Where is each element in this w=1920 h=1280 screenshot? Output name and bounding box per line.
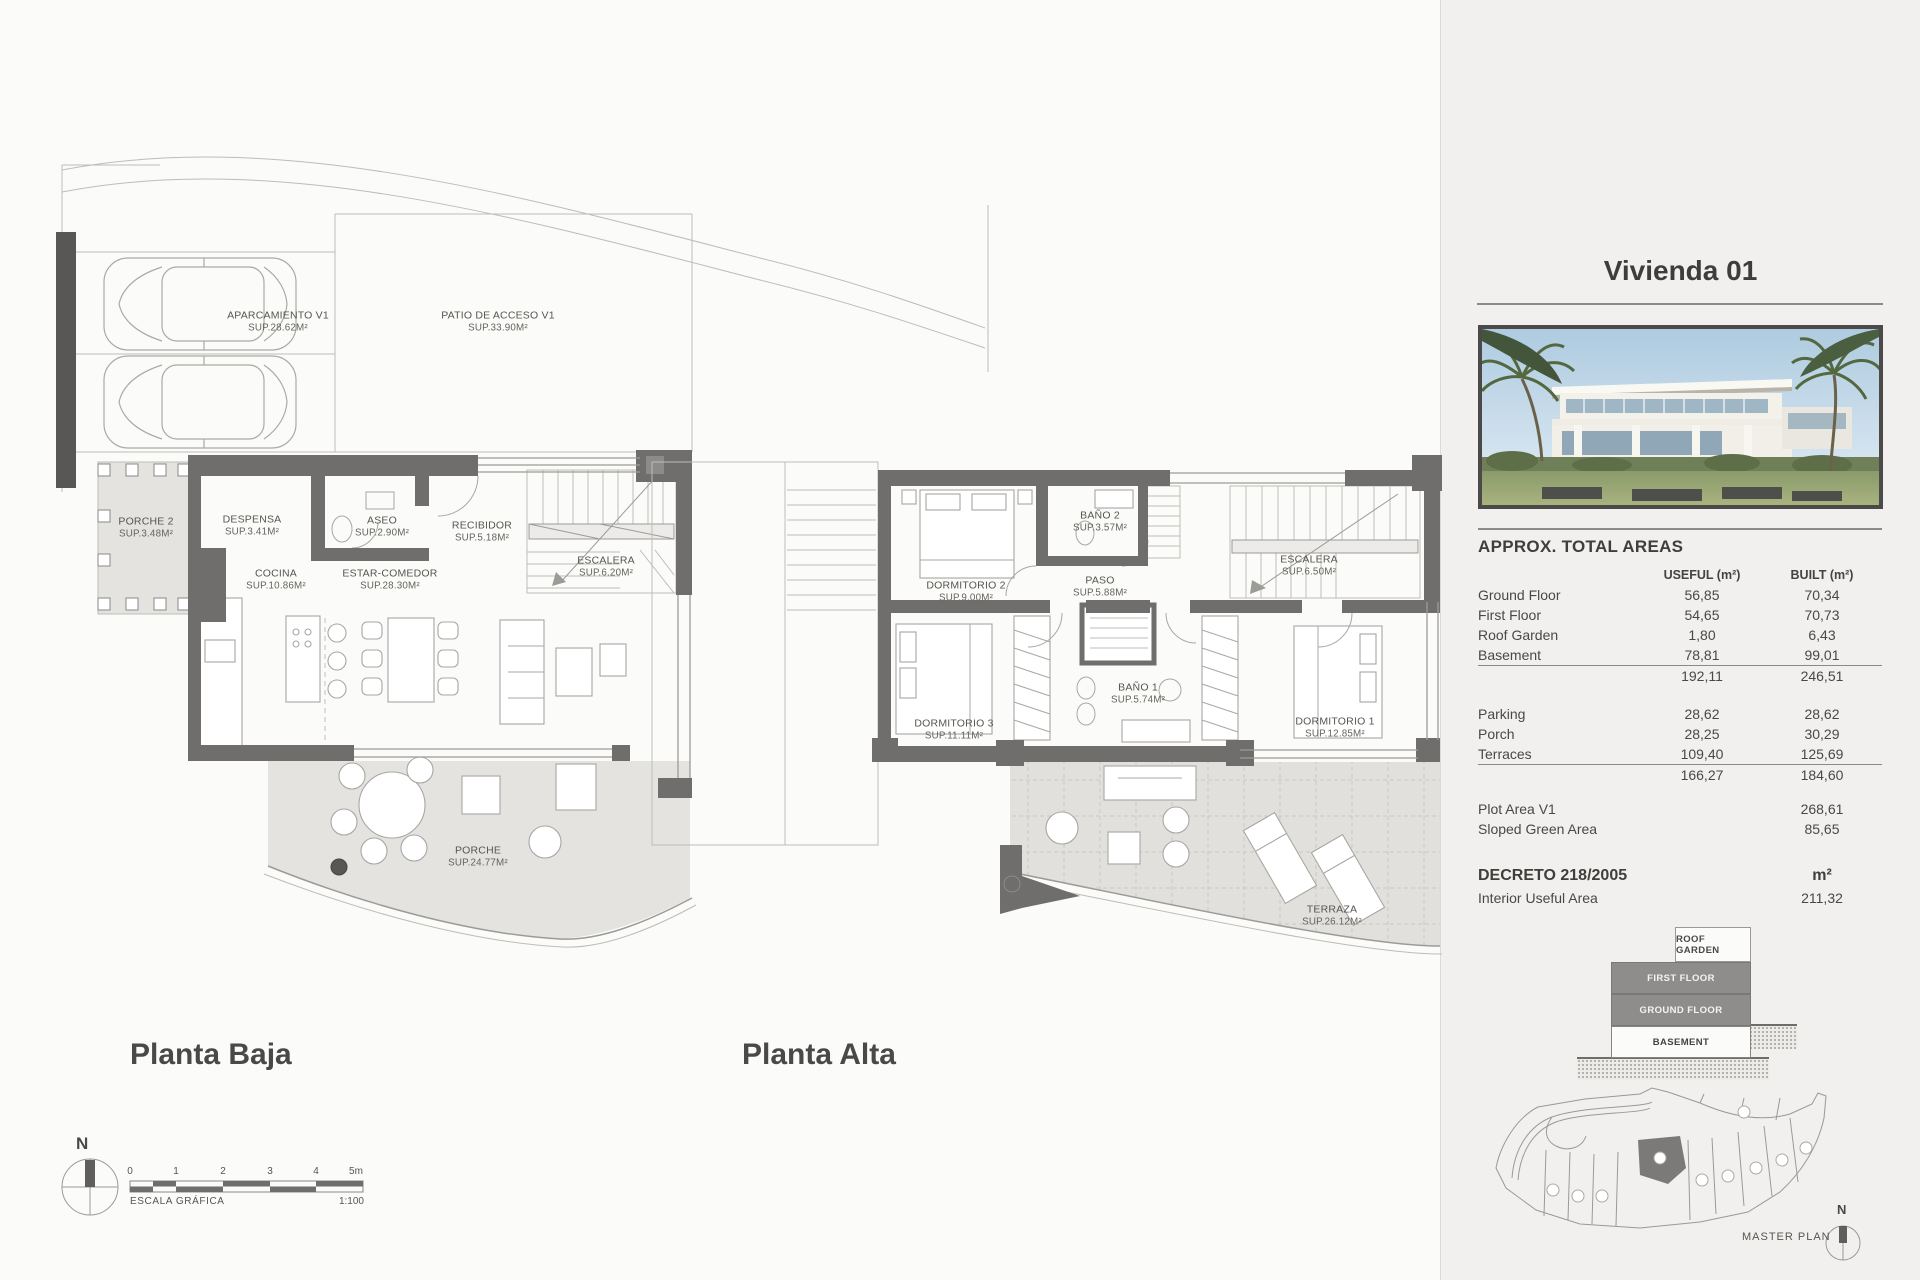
room-label-dormitorio-2: DORMITORIO 2 SUP.9.00M² [926, 580, 1005, 605]
subtotal-row: 166,27 184,60 [1478, 764, 1882, 785]
stack-first-floor: FIRST FLOOR [1611, 962, 1751, 994]
table-row: Roof Garden 1,80 6,43 [1478, 625, 1882, 645]
scale-tick-2: 2 [220, 1166, 226, 1177]
room-label-bano-1: BAÑO 1 SUP.5.74M² [1111, 682, 1165, 707]
floorplan-sheet: APARCAMIENTO V1 SUP.28.62M² PATIO DE ACC… [0, 0, 1920, 1280]
title-rule [1477, 303, 1883, 305]
stack-basement: BASEMENT [1611, 1026, 1751, 1058]
scale-tick-4: 4 [313, 1166, 319, 1177]
room-label-cocina: COCINA SUP.10.86M² [246, 568, 306, 593]
scale-tick-1: 1 [173, 1166, 179, 1177]
ground-hatch-right [1749, 1024, 1797, 1049]
table-row: Basement 78,81 99,01 [1478, 645, 1882, 665]
scale-tick-3: 3 [267, 1166, 273, 1177]
subtotal-row: 192,11 246,51 [1478, 665, 1882, 686]
room-label-recibidor: RECIBIDOR SUP.5.18M² [452, 520, 512, 545]
villa-render [1482, 329, 1879, 505]
room-label-despensa: DESPENSA SUP.3.41M² [223, 514, 282, 539]
areas-header-row: USEFUL (m²) BUILT (m²) [1478, 565, 1882, 585]
plan-title-alta: Planta Alta [742, 1038, 896, 1072]
label-aparcamiento: APARCAMIENTO V1 SUP.28.62M² [227, 310, 329, 335]
table-row: First Floor 54,65 70,73 [1478, 605, 1882, 625]
room-label-dormitorio-3: DORMITORIO 3 SUP.11.11M² [914, 718, 993, 743]
unit-title: Vivienda 01 [1478, 255, 1883, 287]
room-label-escalera-baja: ESCALERA SUP.6.20M² [577, 555, 635, 580]
site-wall-bar [56, 232, 76, 488]
scale-caption: ESCALA GRÁFICA [130, 1196, 225, 1207]
plan-title-baja: Planta Baja [130, 1038, 292, 1072]
villa-photo [1478, 325, 1883, 509]
table-row: Parking 28,62 28,62 [1478, 704, 1882, 724]
scale-tick-5: 5m [349, 1166, 363, 1177]
col-useful: USEFUL (m²) [1642, 568, 1762, 582]
stack-ground-floor: GROUND FLOOR [1611, 994, 1751, 1026]
room-label-paso: PASO SUP.5.88M² [1073, 575, 1127, 600]
scale-tick-0: 0 [127, 1166, 133, 1177]
decreto-row: DECRETO 218/2005 m² [1478, 865, 1882, 887]
room-label-estar-comedor: ESTAR-COMEDOR SUP.28.30M² [342, 568, 437, 593]
room-label-porche-2: PORCHE 2 SUP.3.48M² [118, 516, 173, 541]
scale-ratio: 1:100 [330, 1196, 364, 1207]
areas-table: USEFUL (m²) BUILT (m²) Ground Floor 56,8… [1478, 565, 1882, 909]
ground-hatch-bottom [1577, 1057, 1769, 1080]
masterplan-caption: MASTER PLAN [1742, 1231, 1831, 1243]
plot-area-row: Plot Area V1 268,61 [1478, 799, 1882, 819]
room-label-escalera-alta: ESCALERA SUP.6.50M² [1280, 554, 1338, 579]
table-row: Porch 28,25 30,29 [1478, 724, 1882, 744]
areas-heading: APPROX. TOTAL AREAS [1478, 537, 1683, 557]
stack-roof-garden: ROOF GARDEN [1675, 927, 1751, 962]
table-row: Terraces 109,40 125,69 [1478, 744, 1882, 764]
room-label-terraza: TERRAZA SUP.26.12M² [1302, 904, 1362, 929]
room-label-porche: PORCHE SUP.24.77M² [448, 845, 508, 870]
col-built: BUILT (m²) [1762, 568, 1882, 582]
room-label-dormitorio-1: DORMITORIO 1 SUP.12.85M² [1295, 716, 1374, 741]
areas-rule [1478, 528, 1882, 530]
label-patio-acceso: PATIO DE ACCESO V1 SUP.33.90M² [441, 310, 555, 335]
north-letter: N [76, 1134, 88, 1154]
table-row: Ground Floor 56,85 70,34 [1478, 585, 1882, 605]
room-label-bano-2: BAÑO 2 SUP.3.57M² [1073, 510, 1127, 535]
sloped-area-row: Sloped Green Area 85,65 [1478, 819, 1882, 839]
masterplan-north-letter: N [1837, 1202, 1846, 1217]
interior-useful-row: Interior Useful Area 211,32 [1478, 887, 1882, 909]
room-label-aseo: ASEO SUP.2.90M² [355, 515, 409, 540]
